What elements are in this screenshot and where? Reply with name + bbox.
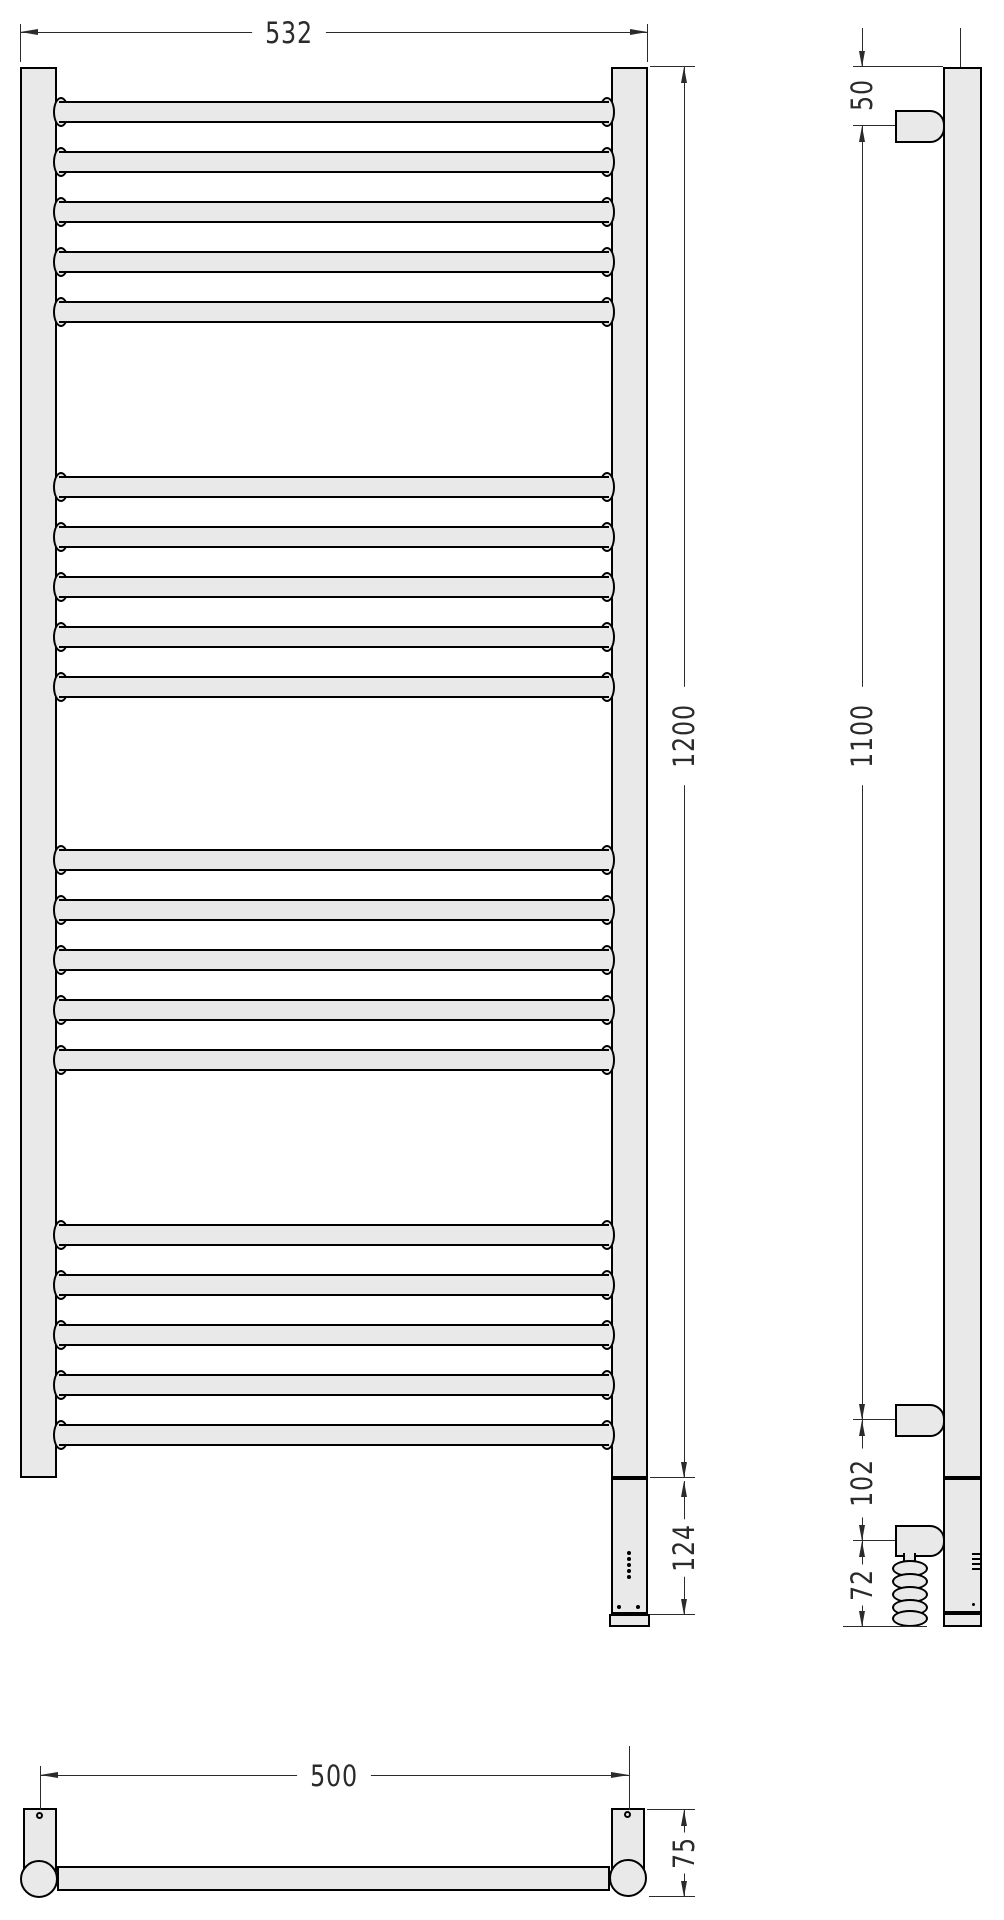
- screw-dot-right: [636, 1605, 640, 1609]
- rung: [53, 1045, 615, 1075]
- rung: [53, 622, 615, 652]
- led-dot: [627, 1551, 631, 1555]
- rung: [53, 1320, 615, 1350]
- extension-line: [647, 1809, 695, 1810]
- dim-label-mount-hole-span: 500: [297, 1760, 371, 1792]
- side-rail-bar: [943, 67, 982, 1478]
- mount-hole-left: [36, 1812, 43, 1819]
- vent-slot: [972, 1563, 980, 1565]
- rung-body: [59, 1274, 609, 1296]
- rung: [53, 1420, 615, 1450]
- led-dot: [627, 1557, 631, 1561]
- extension-line: [649, 1896, 695, 1897]
- dim-label-heater-offset: 102: [847, 1449, 877, 1518]
- rung-body: [59, 1424, 609, 1446]
- dim-label-cable-drop: 72: [848, 1565, 876, 1606]
- rung: [53, 1370, 615, 1400]
- control-unit-bottom-cap-side: [943, 1613, 982, 1627]
- led-dot: [627, 1563, 631, 1567]
- rung: [53, 522, 615, 552]
- rung-body: [59, 201, 609, 223]
- extension-line: [650, 1477, 695, 1478]
- arrowhead-up: [859, 1541, 865, 1557]
- rung-body: [59, 301, 609, 323]
- extension-line: [843, 1626, 927, 1627]
- rung-body: [59, 1049, 609, 1071]
- rung-body: [59, 899, 609, 921]
- rung-body: [59, 849, 609, 871]
- axis-line: [960, 28, 961, 67]
- rung-body: [59, 151, 609, 173]
- dim-label-control-unit-height: 124: [669, 1519, 699, 1576]
- mount-hole-right: [624, 1811, 631, 1818]
- extension-line: [629, 1746, 630, 1810]
- rung: [53, 895, 615, 925]
- rung-body: [59, 676, 609, 698]
- dim-label-front-width: 532: [252, 17, 326, 49]
- arrowhead-down: [859, 1404, 865, 1420]
- arrowhead-up: [859, 126, 865, 142]
- rung: [53, 197, 615, 227]
- rung: [53, 247, 615, 277]
- dim-label-front-height: 1200: [669, 687, 699, 785]
- rung-body: [59, 1224, 609, 1246]
- arrowhead-up: [859, 1420, 865, 1436]
- control-unit-front: [611, 1478, 648, 1614]
- rung: [53, 945, 615, 975]
- dim-label-top-rung-offset: 50: [848, 72, 876, 118]
- rung-body: [59, 526, 609, 548]
- rung-body: [59, 626, 609, 648]
- technical-drawing-canvas: 532 1200 124 50: [0, 0, 1004, 1920]
- arrowhead-down: [859, 51, 865, 67]
- arrowhead-down: [681, 1881, 687, 1897]
- dim-label-bracket-depth: 75: [670, 1833, 698, 1874]
- front-left-rail: [20, 67, 57, 1478]
- rung-body: [59, 101, 609, 123]
- arrowhead-down: [681, 1462, 687, 1478]
- rung: [53, 472, 615, 502]
- arrowhead-up: [681, 1481, 687, 1497]
- vent-slot: [972, 1553, 980, 1555]
- rung: [53, 572, 615, 602]
- post-section-right: [609, 1859, 647, 1897]
- rung-body: [59, 576, 609, 598]
- rung-body: [59, 949, 609, 971]
- control-unit-bottom-cap-front: [609, 1614, 650, 1627]
- extension-line: [650, 1614, 695, 1615]
- arrowhead-up: [681, 1810, 687, 1826]
- rung: [53, 97, 615, 127]
- arrowhead-left: [40, 1772, 58, 1778]
- rung: [53, 845, 615, 875]
- vent-slot: [972, 1568, 980, 1570]
- rung-body: [59, 476, 609, 498]
- arrowhead-down: [859, 1525, 865, 1541]
- bottom-rail-bar: [57, 1866, 610, 1891]
- arrowhead-right: [611, 1772, 629, 1778]
- rung: [53, 672, 615, 702]
- rung: [53, 995, 615, 1025]
- arrowhead-down: [859, 1611, 865, 1627]
- extension-line: [853, 66, 943, 67]
- vent-slot: [972, 1558, 980, 1560]
- arrowhead-left: [20, 29, 38, 35]
- screw-dot-left: [617, 1605, 621, 1609]
- led-dot: [627, 1575, 631, 1579]
- dimension-line: [20, 32, 648, 33]
- dim-label-rung-span: 1100: [847, 687, 877, 785]
- rung-body: [59, 1324, 609, 1346]
- side-screw-dot: [972, 1603, 975, 1606]
- rung: [53, 1270, 615, 1300]
- rung-body: [59, 999, 609, 1021]
- top-rung-stub: [895, 110, 945, 143]
- rung-body: [59, 1374, 609, 1396]
- cable-coil-loop: [892, 1610, 928, 1627]
- arrowhead-right: [630, 29, 648, 35]
- rung-body: [59, 251, 609, 273]
- extension-line: [650, 66, 695, 67]
- post-section-left: [20, 1860, 58, 1898]
- arrowhead-down: [681, 1599, 687, 1615]
- rung: [53, 297, 615, 327]
- rung: [53, 147, 615, 177]
- bottom-rung-stub: [895, 1404, 945, 1437]
- arrowhead-up: [681, 67, 687, 83]
- front-right-rail: [611, 67, 648, 1478]
- control-unit-side: [943, 1478, 982, 1613]
- rung: [53, 1220, 615, 1250]
- led-dot: [627, 1569, 631, 1573]
